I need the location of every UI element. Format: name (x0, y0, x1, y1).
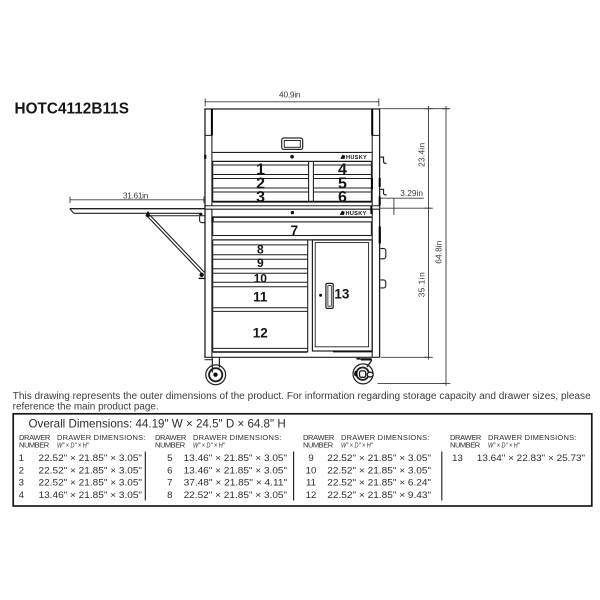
svg-text:NUMBER: NUMBER (155, 441, 186, 450)
svg-text:3.29in: 3.29in (400, 188, 423, 198)
svg-text:22.52" × 21.85" × 3.05": 22.52" × 21.85" × 3.05" (39, 465, 143, 476)
svg-text:HUSKY: HUSKY (346, 211, 367, 217)
svg-text:13.46" × 21.85" × 3.05": 13.46" × 21.85" × 3.05" (39, 490, 143, 501)
svg-text:37.48" × 21.85" × 4.11": 37.48" × 21.85" × 4.11" (184, 478, 288, 489)
svg-text:6: 6 (338, 189, 347, 206)
svg-text:8: 8 (167, 490, 172, 501)
svg-text:22.52" × 21.85" × 9.43": 22.52" × 21.85" × 9.43" (327, 490, 431, 501)
svg-text:10: 10 (306, 465, 317, 476)
svg-text:2: 2 (19, 465, 24, 476)
svg-text:22.52" × 21.85" × 3.05": 22.52" × 21.85" × 3.05" (39, 478, 143, 489)
svg-text:NUMBER: NUMBER (303, 441, 334, 450)
svg-text:reference the main product pag: reference the main product page. (13, 402, 159, 413)
svg-text:3: 3 (256, 189, 265, 206)
svg-text:12: 12 (306, 490, 317, 501)
svg-text:23.4in: 23.4in (417, 143, 427, 167)
svg-text:11: 11 (306, 478, 316, 489)
svg-text:Overall Dimensions: 44.19" W ×: Overall Dimensions: 44.19" W × 24.5" D ×… (29, 418, 286, 431)
svg-text:NUMBER: NUMBER (450, 441, 481, 450)
svg-text:31.61in: 31.61in (123, 190, 149, 200)
svg-text:4: 4 (19, 490, 25, 501)
svg-text:13.46" × 21.85" × 3.05": 13.46" × 21.85" × 3.05" (184, 453, 288, 464)
svg-text:HOTC4112B11S: HOTC4112B11S (15, 101, 130, 118)
svg-text:This drawing represents the ou: This drawing represents the outer dimens… (13, 391, 592, 402)
svg-text:3: 3 (19, 478, 24, 489)
svg-text:W" × D" × H": W" × D" × H" (488, 441, 520, 450)
svg-text:22.52" × 21.85" × 3.05": 22.52" × 21.85" × 3.05" (39, 453, 143, 464)
svg-text:9: 9 (257, 256, 264, 270)
svg-text:22.52" × 21.85" × 3.05": 22.52" × 21.85" × 3.05" (327, 453, 431, 464)
svg-text:HUSKY: HUSKY (346, 155, 367, 161)
svg-text:22.52" × 21.85" × 3.05": 22.52" × 21.85" × 3.05" (327, 465, 431, 476)
svg-text:13: 13 (452, 453, 463, 464)
svg-text:10: 10 (254, 271, 268, 285)
svg-text:40.9in: 40.9in (279, 90, 301, 100)
svg-text:W" × D" × H": W" × D" × H" (193, 441, 225, 450)
svg-text:12: 12 (253, 325, 268, 340)
svg-text:W" × D" × H": W" × D" × H" (341, 441, 373, 450)
svg-text:13.46" × 21.85" × 3.05": 13.46" × 21.85" × 3.05" (184, 465, 288, 476)
svg-text:8: 8 (257, 243, 264, 257)
svg-text:13: 13 (334, 287, 350, 302)
svg-text:64.8in: 64.8in (434, 240, 444, 263)
svg-text:5: 5 (167, 453, 172, 464)
svg-text:13.64" × 22.83" × 25.73": 13.64" × 22.83" × 25.73" (477, 453, 585, 464)
svg-text:W" × D" × H": W" × D" × H" (57, 441, 89, 450)
svg-text:NUMBER: NUMBER (19, 441, 50, 450)
svg-text:35.1in: 35.1in (417, 272, 427, 297)
svg-text:6: 6 (167, 465, 172, 476)
svg-text:7: 7 (167, 478, 172, 489)
svg-text:22.52" × 21.85" × 3.05": 22.52" × 21.85" × 3.05" (184, 490, 288, 501)
svg-text:22.52" × 21.85" × 6.24": 22.52" × 21.85" × 6.24" (327, 478, 431, 489)
svg-text:1: 1 (19, 453, 24, 464)
svg-text:9: 9 (308, 453, 313, 464)
svg-text:7: 7 (290, 223, 298, 238)
svg-text:11: 11 (253, 290, 268, 305)
